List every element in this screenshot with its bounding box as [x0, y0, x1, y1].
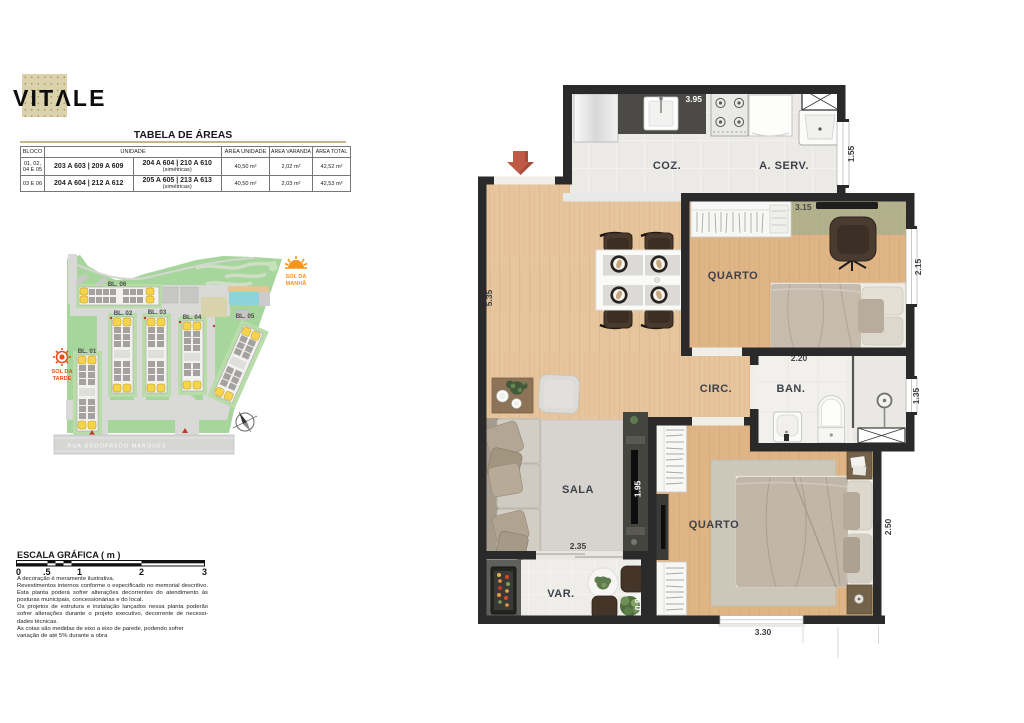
svg-text:3.15: 3.15	[795, 202, 812, 212]
svg-text:SALA: SALA	[562, 484, 594, 496]
svg-text:BAN.: BAN.	[777, 383, 806, 395]
svg-text:QUARTO: QUARTO	[689, 519, 739, 531]
svg-text:3.95: 3.95	[685, 94, 702, 104]
svg-text:MANHÃ: MANHÃ	[286, 280, 307, 287]
svg-text:1.35: 1.35	[911, 387, 921, 404]
svg-text:2.35: 2.35	[570, 541, 587, 551]
svg-text:COZ.: COZ.	[653, 160, 681, 172]
svg-text:2.15: 2.15	[913, 258, 923, 275]
svg-text:BL. 01: BL. 01	[78, 348, 97, 355]
svg-text:3.30: 3.30	[755, 627, 772, 637]
svg-text:SOL DA: SOL DA	[285, 274, 306, 280]
svg-text:0.95: 0.95	[633, 593, 643, 610]
svg-text:SOL DA: SOL DA	[51, 369, 72, 375]
svg-text:A. SERV.: A. SERV.	[759, 160, 809, 172]
svg-text:CIRC.: CIRC.	[700, 383, 732, 395]
svg-text:QUARTO: QUARTO	[708, 270, 758, 282]
svg-text:TARDE: TARDE	[53, 376, 72, 382]
svg-text:BL. 02: BL. 02	[114, 310, 133, 317]
svg-text:1.55: 1.55	[846, 145, 856, 162]
svg-text:BL. 03: BL. 03	[148, 309, 167, 316]
svg-text:VAR.: VAR.	[547, 588, 574, 600]
svg-text:BL. 05: BL. 05	[236, 313, 255, 320]
svg-text:BL. 04: BL. 04	[183, 314, 202, 321]
svg-text:2.50: 2.50	[883, 518, 893, 535]
svg-text:1.95: 1.95	[633, 480, 643, 497]
svg-text:RUA GODOFREDO MARQUES: RUA GODOFREDO MARQUES	[68, 444, 167, 450]
